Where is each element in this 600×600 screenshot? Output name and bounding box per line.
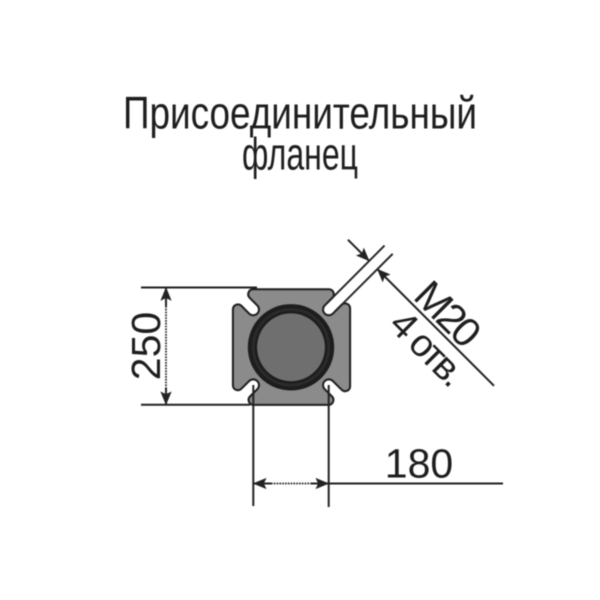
svg-text:фланец: фланец: [242, 129, 358, 180]
svg-text:180: 180: [385, 441, 453, 487]
svg-text:250: 250: [123, 312, 169, 380]
